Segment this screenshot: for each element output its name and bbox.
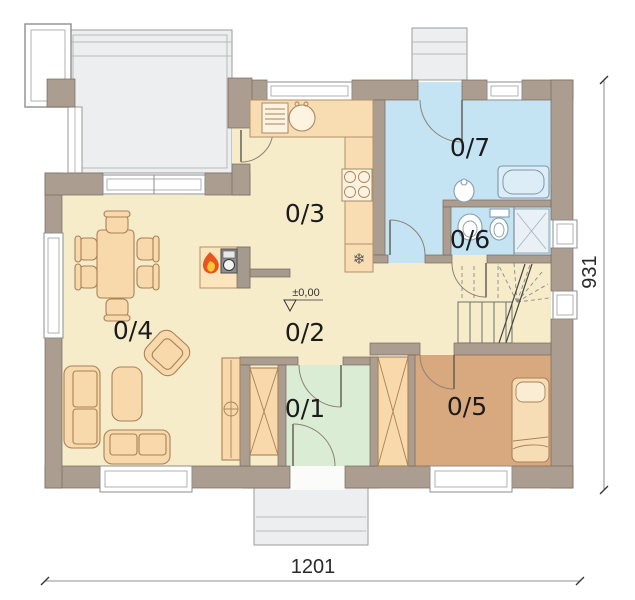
wall: [408, 355, 415, 466]
window-right-wc: [553, 220, 577, 248]
wall: [373, 255, 388, 263]
floor-plan-canvas: ❄: [0, 0, 635, 600]
sofa-two-seat: [64, 366, 100, 448]
elevation-label: ±0,00: [292, 287, 319, 299]
wardrobe-closet: [378, 357, 408, 466]
cooktop: [342, 169, 372, 201]
wall: [370, 357, 378, 466]
room-label-0-1: 0/1: [285, 394, 325, 423]
dining-chair: [75, 236, 97, 262]
dining-chair: [137, 264, 159, 290]
wall: [45, 173, 103, 195]
wall: [352, 80, 418, 100]
wall: [240, 365, 250, 466]
bedroom-door-threshold: [420, 343, 454, 355]
dining-chair: [104, 211, 130, 233]
sofa-three-seat: [104, 430, 170, 464]
entrance-threshold: [290, 466, 345, 490]
wall: [240, 357, 298, 365]
vestibule-door-threshold: [298, 357, 343, 365]
hall-closet: [250, 368, 278, 455]
stove-grate: [223, 251, 235, 258]
wall: [487, 255, 551, 263]
terrace: [68, 30, 232, 173]
washbasin-room7: [454, 179, 474, 202]
window-right-stairs: [553, 291, 577, 319]
wall-pillar: [47, 79, 75, 107]
room-0-7-door-threshold: [388, 255, 425, 263]
dimension-depth: 931: [579, 255, 601, 288]
wall: [192, 466, 290, 488]
dining-table: [97, 230, 134, 298]
shower-tray: [514, 207, 549, 255]
dining-chair: [75, 264, 97, 290]
room-label-0-3: 0/3: [285, 199, 325, 228]
wall: [551, 80, 573, 220]
window-left-living: [44, 233, 63, 338]
wall: [45, 338, 62, 488]
wall: [370, 343, 420, 355]
window-bottom-living: [100, 466, 192, 492]
sideboard: [222, 358, 240, 460]
coffee-table: [112, 367, 142, 421]
fireplace-stub-wall: [250, 269, 290, 277]
back-door-threshold: [418, 82, 462, 100]
wall: [551, 248, 573, 291]
wall: [454, 343, 551, 355]
room-label-0-4: 0/4: [113, 316, 153, 345]
room-0-7-floor-ext: [385, 200, 443, 255]
window-kitchen: [267, 82, 352, 100]
dimension-width: 1201: [291, 556, 336, 578]
floor-plan-page: ❄: [0, 0, 635, 600]
terrace-glass-door: [103, 175, 205, 194]
wall: [373, 100, 385, 255]
stove-ring: [224, 260, 235, 271]
wall: [551, 319, 573, 488]
room-label-0-6: 0/6: [450, 225, 490, 254]
wall: [462, 80, 487, 100]
wall: [232, 164, 250, 195]
fireplace-chimney: [237, 247, 250, 288]
kitchen-sink: [262, 102, 315, 133]
room-label-0-2: 0/2: [285, 318, 325, 347]
room-label-0-7: 0/7: [450, 133, 490, 162]
wall: [345, 466, 430, 488]
window-room7: [487, 82, 522, 100]
hall-stairs-floor: [378, 263, 551, 343]
wc-door-threshold: [452, 255, 487, 263]
bathtub: [498, 166, 549, 198]
room-label-0-5: 0/5: [447, 392, 487, 421]
window-bottom-bedroom: [430, 466, 512, 492]
wall: [512, 466, 573, 488]
wall: [425, 255, 452, 263]
toilet: [490, 209, 509, 240]
bed: [512, 378, 549, 462]
snowflake-icon: ❄: [353, 251, 366, 268]
dining-chair: [137, 236, 159, 262]
fridge: ❄: [345, 244, 373, 272]
wall-pillar: [228, 78, 252, 128]
